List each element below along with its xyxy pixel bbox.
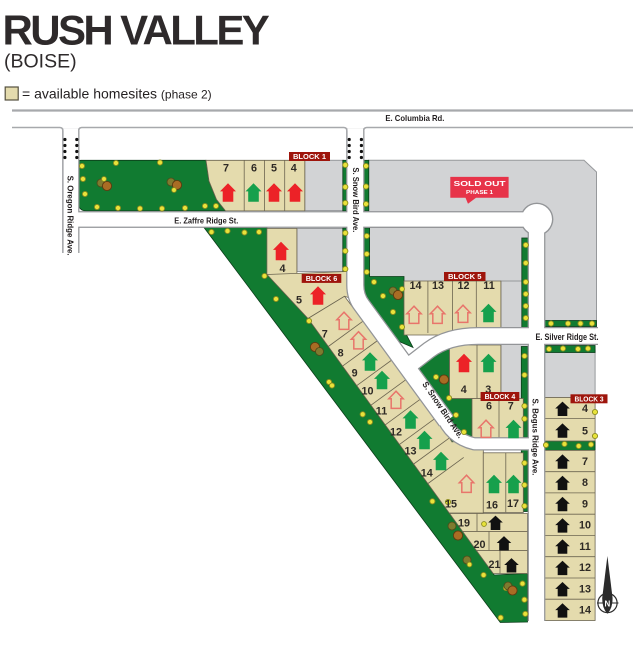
svg-text:S. Bogus Ridge Ave.: S. Bogus Ridge Ave. — [530, 399, 540, 476]
svg-text:14: 14 — [579, 605, 591, 617]
svg-text:4: 4 — [582, 403, 588, 415]
svg-text:= available homesites (phase 2: = available homesites (phase 2) — [22, 86, 212, 102]
svg-text:BLOCK 4: BLOCK 4 — [485, 392, 516, 401]
svg-text:15: 15 — [445, 499, 457, 511]
svg-text:4: 4 — [279, 263, 285, 275]
svg-text:9: 9 — [352, 368, 358, 380]
svg-text:S. Snow Bird Ave.: S. Snow Bird Ave. — [351, 167, 361, 232]
svg-text:7: 7 — [508, 401, 514, 413]
svg-text:BLOCK 6: BLOCK 6 — [306, 274, 338, 283]
svg-text:13: 13 — [404, 445, 416, 457]
svg-text:10: 10 — [579, 520, 591, 532]
svg-text:13: 13 — [432, 280, 444, 292]
svg-text:8: 8 — [338, 348, 344, 360]
svg-text:(BOISE): (BOISE) — [4, 51, 77, 73]
svg-text:4: 4 — [291, 162, 297, 174]
svg-text:N: N — [605, 599, 611, 608]
svg-text:5: 5 — [296, 294, 302, 306]
svg-text:E. Silver Ridge St.: E. Silver Ridge St. — [536, 332, 599, 342]
svg-text:S. Oregon Ridge Ave.: S. Oregon Ridge Ave. — [66, 176, 76, 256]
svg-text:10: 10 — [361, 386, 373, 398]
svg-text:20: 20 — [473, 539, 485, 551]
svg-text:9: 9 — [582, 498, 588, 510]
svg-text:21: 21 — [488, 559, 500, 571]
svg-text:12: 12 — [457, 280, 469, 292]
svg-text:5: 5 — [271, 162, 277, 174]
svg-text:7: 7 — [223, 162, 229, 174]
svg-text:14: 14 — [421, 467, 433, 479]
svg-text:11: 11 — [483, 280, 494, 292]
svg-text:6: 6 — [486, 401, 492, 413]
svg-text:12: 12 — [390, 426, 402, 438]
svg-text:4: 4 — [461, 384, 467, 396]
svg-text:E. Zaffre Ridge St.: E. Zaffre Ridge St. — [174, 215, 238, 225]
svg-text:16: 16 — [486, 500, 498, 512]
svg-text:7: 7 — [582, 456, 588, 468]
svg-text:12: 12 — [579, 562, 591, 574]
svg-text:BLOCK 3: BLOCK 3 — [575, 394, 604, 403]
svg-text:RUSH VALLEY: RUSH VALLEY — [3, 7, 270, 54]
svg-text:17: 17 — [507, 498, 519, 510]
svg-text:SOLD OUT: SOLD OUT — [454, 179, 506, 188]
svg-text:13: 13 — [579, 583, 591, 595]
svg-text:6: 6 — [251, 162, 257, 174]
svg-text:11: 11 — [376, 405, 387, 417]
svg-text:E. Columbia Rd.: E. Columbia Rd. — [385, 113, 444, 123]
svg-text:BLOCK 1: BLOCK 1 — [293, 152, 326, 161]
svg-text:5: 5 — [582, 426, 588, 438]
svg-text:14: 14 — [409, 280, 421, 292]
svg-text:PHASE 1: PHASE 1 — [466, 190, 493, 196]
svg-text:19: 19 — [458, 517, 470, 529]
svg-text:BLOCK 5: BLOCK 5 — [448, 272, 482, 281]
svg-text:8: 8 — [582, 477, 588, 489]
svg-text:7: 7 — [322, 329, 328, 341]
svg-text:11: 11 — [579, 541, 590, 553]
